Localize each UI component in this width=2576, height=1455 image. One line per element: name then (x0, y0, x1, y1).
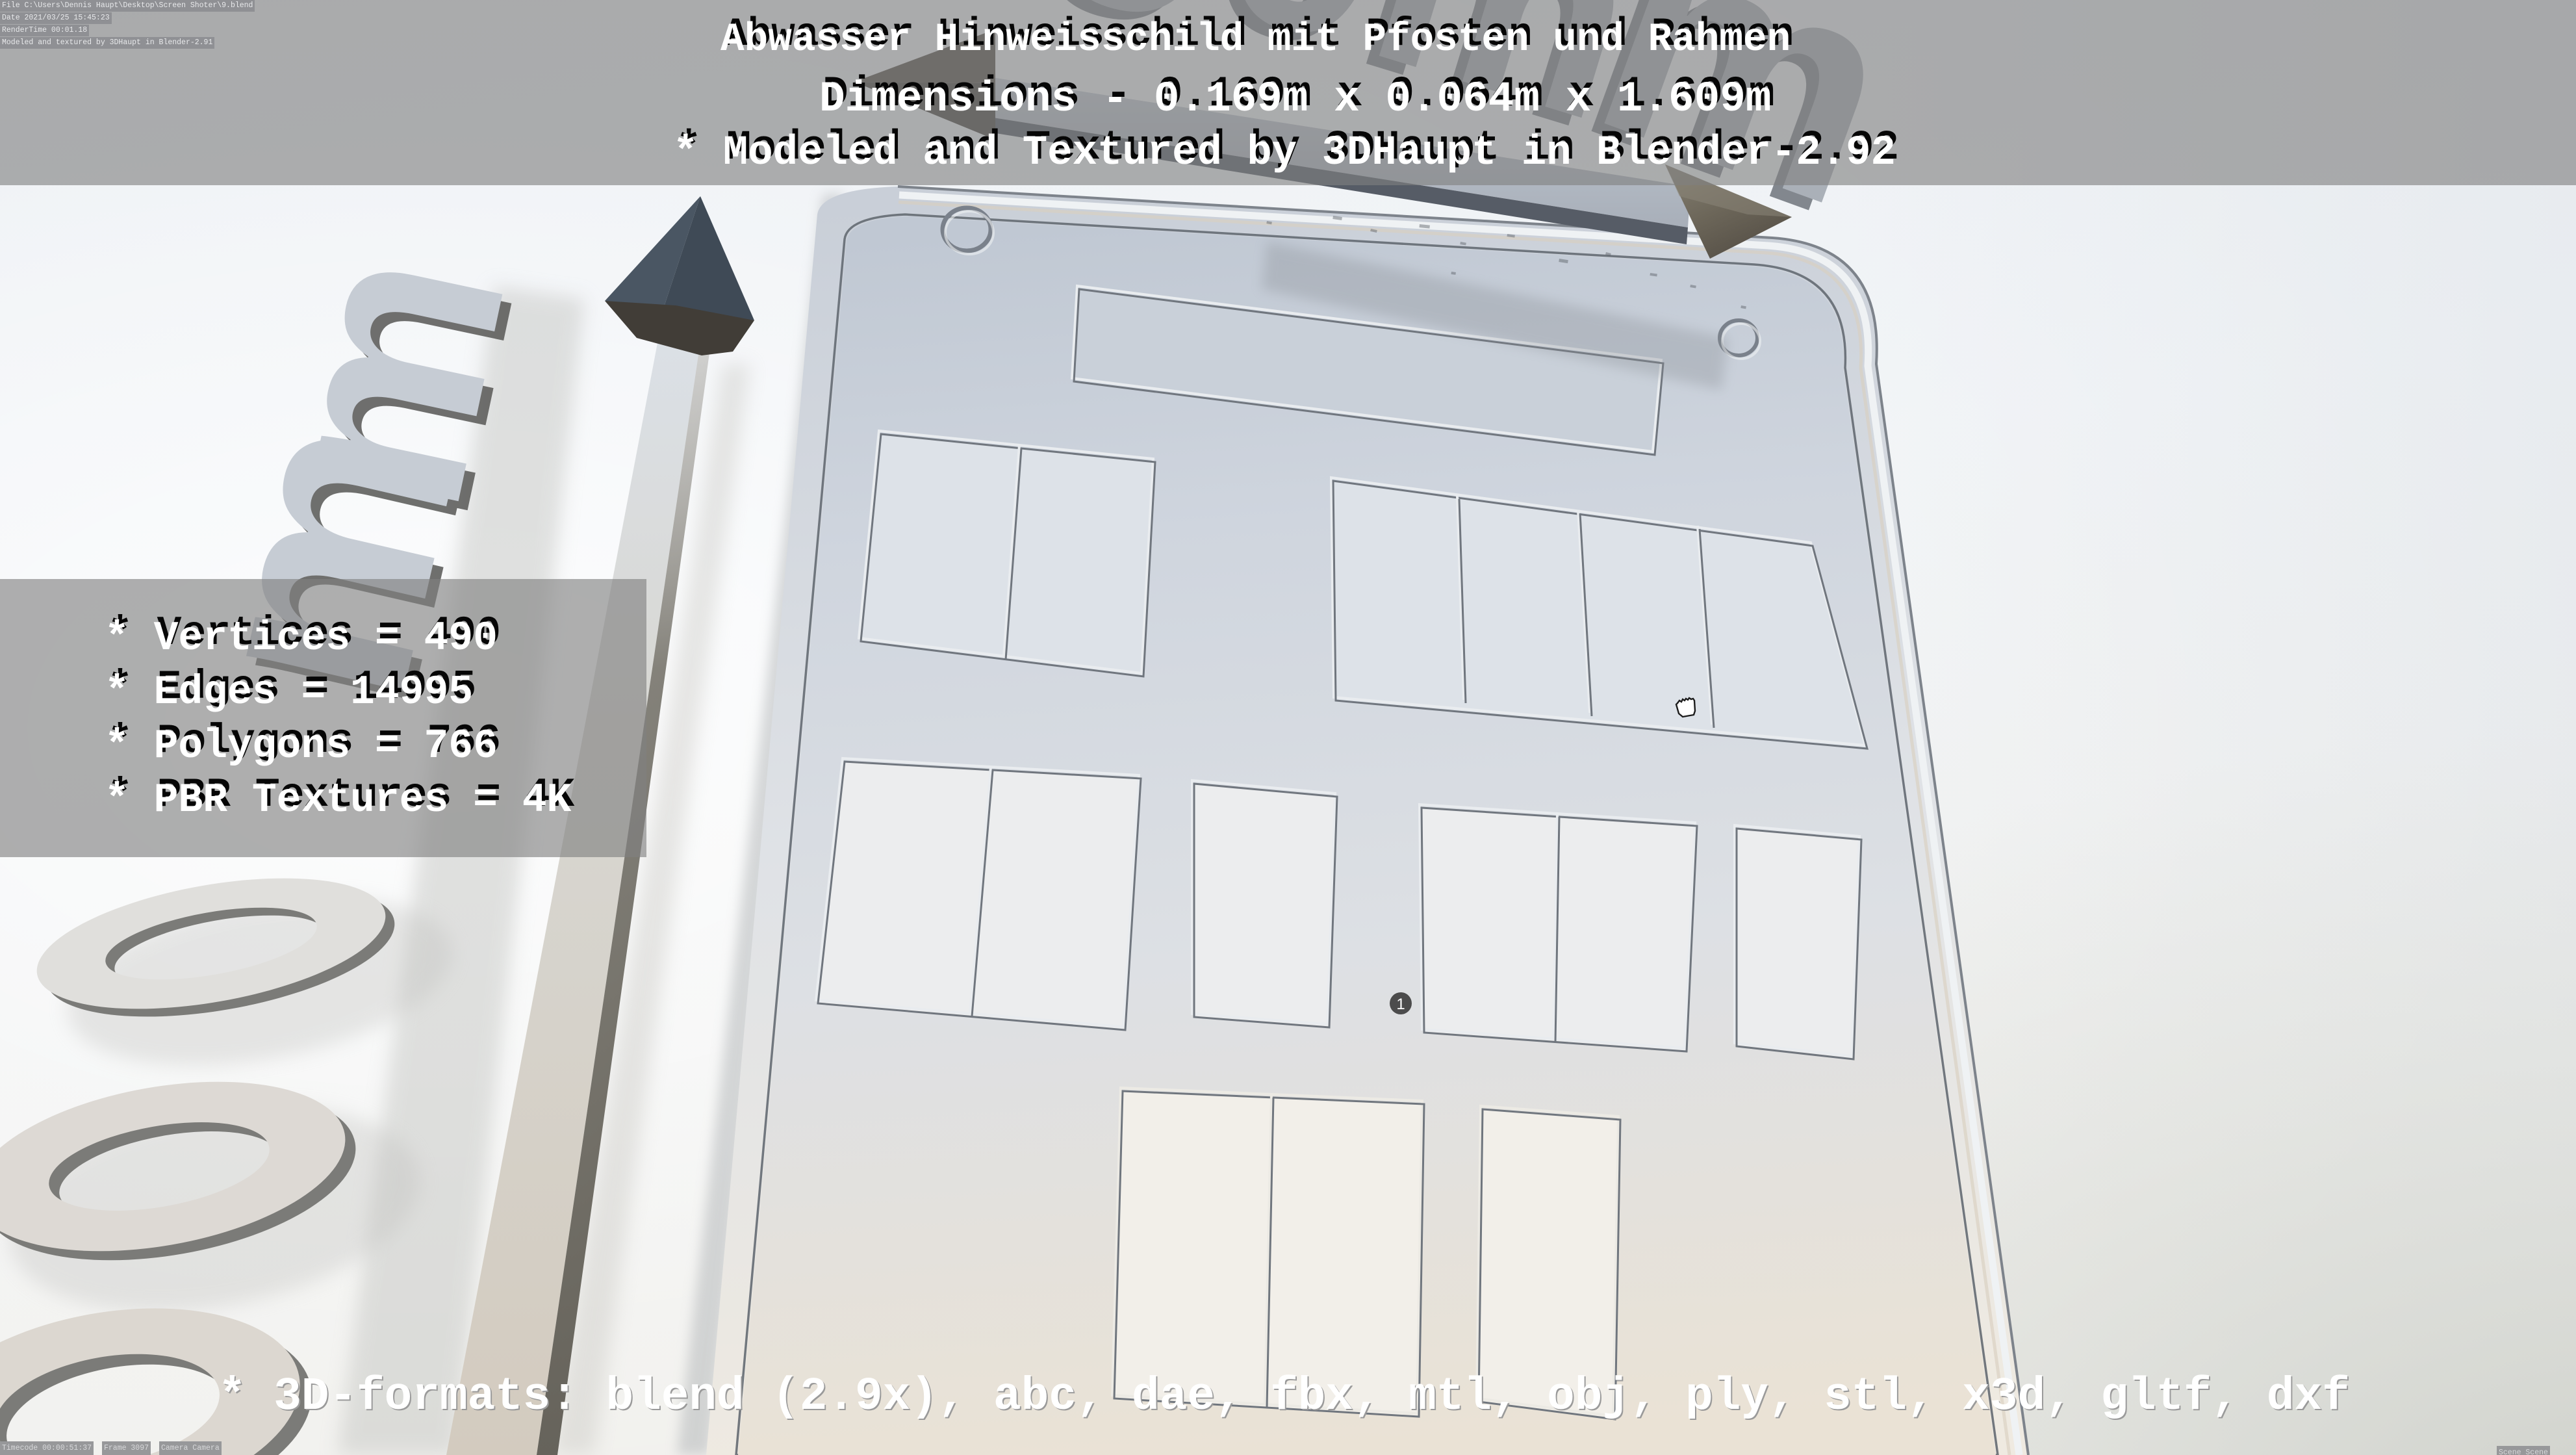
svg-text:1: 1 (1396, 996, 1405, 1013)
